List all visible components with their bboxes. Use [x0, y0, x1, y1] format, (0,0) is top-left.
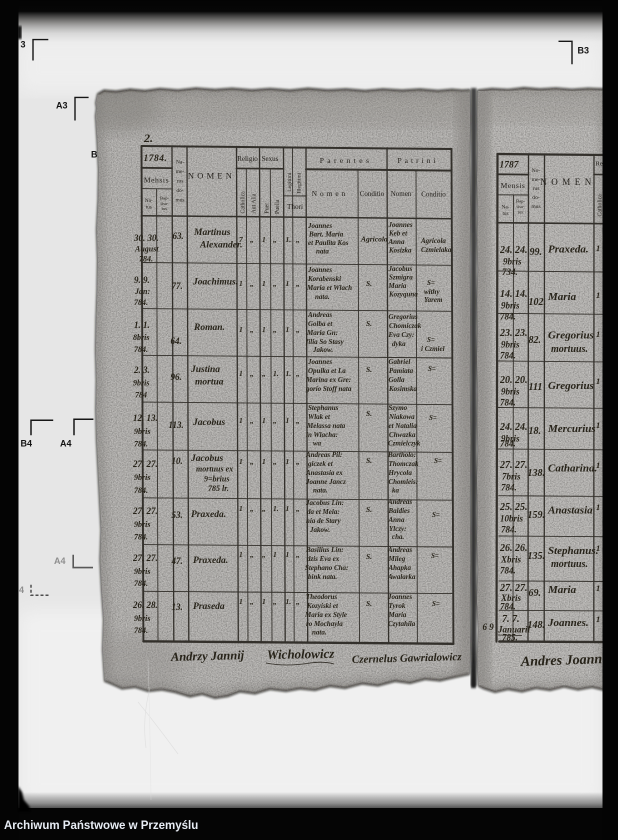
svg-text:mus: mus: [176, 198, 185, 204]
svg-text:Jakow.: Jakow.: [312, 346, 333, 354]
svg-text:Basilius Lin:: Basilius Lin:: [305, 546, 344, 554]
svg-text:mus: mus: [531, 204, 540, 210]
svg-text:Gregorius: Gregorius: [548, 330, 594, 342]
svg-text:Catholica: Catholica: [240, 191, 246, 214]
svg-text:nata: nata: [316, 248, 329, 256]
svg-text:Praxeda.: Praxeda.: [548, 244, 589, 256]
svg-text:1: 1: [262, 235, 266, 244]
svg-text:Mehsis: Mehsis: [144, 176, 169, 185]
svg-text:1: 1: [596, 614, 600, 624]
svg-text:9bris: 9bris: [503, 257, 522, 267]
svg-text:„: „: [296, 504, 300, 513]
svg-text:785.: 785.: [502, 633, 518, 643]
svg-text:nia de Stary: nia de Stary: [306, 517, 342, 525]
svg-text:Martinus: Martinus: [193, 228, 231, 238]
svg-text:1: 1: [273, 550, 277, 559]
svg-text:S.: S.: [366, 365, 372, 374]
svg-text:August: August: [134, 245, 159, 254]
svg-text:Anastasia: Anastasia: [547, 505, 593, 517]
svg-text:S=: S=: [431, 552, 439, 560]
svg-text:1. 1.: 1. 1.: [134, 320, 150, 330]
svg-text:784.: 784.: [500, 398, 516, 408]
svg-text:Alexander.: Alexander.: [199, 241, 243, 251]
svg-text:1: 1: [239, 550, 243, 559]
svg-text:27. 27.: 27. 27.: [132, 459, 158, 469]
svg-text:10bris: 10bris: [500, 514, 524, 524]
svg-text:1: 1: [286, 504, 290, 513]
svg-text:ka: ka: [392, 487, 400, 495]
svg-text:do-: do-: [532, 195, 540, 201]
svg-text:Chomleis:: Chomleis:: [389, 478, 419, 486]
svg-text:me-: me-: [176, 169, 185, 175]
svg-text:Conditio: Conditio: [421, 190, 446, 198]
svg-text:Maria ex Style: Maria ex Style: [304, 611, 347, 619]
svg-text:113.: 113.: [169, 420, 184, 430]
svg-text:Joanne Jancz: Joanne Jancz: [305, 478, 346, 486]
svg-text:Szmigra: Szmigra: [389, 274, 413, 282]
svg-text:1.: 1.: [273, 369, 279, 378]
svg-text:6 9: 6 9: [483, 622, 495, 632]
svg-text:S=: S=: [432, 600, 440, 608]
svg-text:Chomiczak: Chomiczak: [389, 322, 422, 330]
svg-text:Agricola: Agricola: [360, 235, 388, 244]
svg-text:1.: 1.: [273, 504, 279, 513]
svg-text:„: „: [250, 235, 254, 244]
svg-text:1: 1: [286, 416, 290, 425]
svg-text:Maria: Maria: [547, 291, 577, 303]
svg-text:„: „: [250, 416, 254, 425]
svg-text:da et Mela:: da et Mela:: [307, 508, 340, 516]
svg-text:1: 1: [286, 457, 290, 466]
svg-text:nata.: nata.: [315, 293, 330, 301]
svg-text:9=brius: 9=brius: [204, 475, 229, 484]
svg-text:S=: S=: [429, 414, 437, 422]
svg-text:7: 7: [239, 235, 243, 244]
svg-text:Xbris: Xbris: [500, 555, 522, 565]
svg-text:Kosimska: Kosimska: [388, 385, 418, 393]
svg-text:Stephanus: Stephanus: [308, 404, 339, 412]
svg-text:dzis Eva ex: dzis Eva ex: [307, 555, 340, 563]
svg-text:Opulka et La: Opulka et La: [308, 367, 346, 375]
svg-text:„: „: [296, 369, 300, 378]
svg-text:Jacobus: Jacobus: [192, 418, 226, 428]
svg-text:Andrzy Jannij: Andrzy Jannij: [170, 648, 245, 664]
svg-text:8bris: 8bris: [133, 333, 149, 342]
svg-text:27. 27.: 27. 27.: [499, 460, 528, 471]
svg-text:1: 1: [239, 457, 243, 466]
svg-text:26. 28.: 26. 28.: [132, 600, 158, 610]
svg-text:tus: tus: [502, 211, 508, 217]
svg-text:S.: S.: [366, 599, 372, 608]
svg-text:784.: 784.: [500, 312, 516, 322]
svg-text:Anastasia ex: Anastasia ex: [305, 469, 343, 477]
svg-text:1: 1: [286, 325, 290, 334]
svg-text:mortuus.: mortuus.: [551, 344, 588, 355]
svg-text:785 lr.: 785 lr.: [208, 484, 229, 493]
svg-text:1: 1: [286, 279, 290, 288]
svg-text:Illegitimi: Illegitimi: [297, 172, 303, 193]
svg-text:Joannes: Joannes: [307, 222, 332, 230]
svg-text:nata.: nata.: [313, 487, 328, 495]
svg-text:S=: S=: [428, 365, 436, 373]
svg-text:B4: B4: [21, 439, 33, 449]
svg-text:rus: rus: [177, 179, 184, 185]
svg-text:1: 1: [239, 416, 243, 425]
svg-text:mortua: mortua: [195, 378, 224, 388]
svg-text:23. 23.: 23. 23.: [499, 328, 528, 339]
svg-text:Joannes: Joannes: [387, 593, 412, 601]
svg-text:Thomczak: Thomczak: [389, 460, 419, 468]
svg-text:No-: No-: [532, 168, 541, 174]
svg-text:Baldies: Baldies: [388, 507, 411, 515]
svg-text:1784.: 1784.: [144, 154, 168, 164]
svg-text:1: 1: [596, 329, 600, 339]
svg-text:cha.: cha.: [392, 533, 405, 541]
svg-text:Kozyquna: Kozyquna: [388, 291, 418, 299]
svg-text:„: „: [296, 416, 300, 425]
svg-text:„: „: [262, 369, 266, 378]
svg-text:18.: 18.: [529, 426, 542, 437]
svg-text:Maria et Wlach: Maria et Wlach: [306, 284, 352, 292]
svg-text:Theodorus: Theodorus: [306, 593, 337, 601]
svg-text:Joannes: Joannes: [307, 266, 332, 274]
svg-text:111: 111: [529, 382, 543, 393]
svg-text:S.: S.: [366, 319, 372, 328]
svg-text:Puer: Puer: [265, 203, 271, 214]
svg-text:784.: 784.: [134, 345, 148, 354]
svg-text:9bris: 9bris: [501, 340, 520, 350]
svg-text:784.: 784.: [139, 255, 153, 264]
svg-text:1.: 1.: [286, 235, 292, 244]
svg-text:Andres Joann: Andres Joann: [520, 652, 603, 670]
svg-text:Bartholo:: Bartholo:: [387, 451, 416, 459]
svg-text:784.: 784.: [134, 486, 148, 495]
svg-text:9bris: 9bris: [134, 473, 150, 482]
svg-text:1: 1: [596, 583, 600, 593]
svg-text:Mercurius: Mercurius: [547, 423, 596, 435]
svg-text:Aut Alia: Aut Alia: [252, 193, 258, 213]
svg-text:Mensis: Mensis: [501, 181, 526, 190]
svg-text:Sexus: Sexus: [262, 155, 279, 163]
svg-text:„: „: [250, 597, 254, 606]
svg-text:1: 1: [239, 279, 243, 288]
svg-text:„: „: [296, 457, 300, 466]
svg-text:Conditio: Conditio: [360, 190, 385, 198]
svg-text:in Wlacha:: in Wlacha:: [306, 431, 338, 439]
svg-text:Roman.: Roman.: [193, 323, 225, 333]
svg-text:26. 26.: 26. 26.: [499, 543, 528, 554]
svg-text:Na-: Na-: [502, 205, 510, 211]
svg-text:Archiwum Państwowe w Przemyślu: Archiwum Państwowe w Przemyślu: [4, 820, 198, 832]
svg-text:Gregorius: Gregorius: [548, 380, 594, 392]
svg-text:„: „: [273, 597, 277, 606]
svg-text:Kosizka: Kosizka: [388, 247, 412, 255]
svg-text:9bris: 9bris: [133, 379, 149, 388]
svg-text:1.: 1.: [286, 597, 292, 606]
svg-text:14. 14.: 14. 14.: [500, 289, 528, 300]
svg-text:i Czmiel: i Czmiel: [421, 345, 445, 353]
svg-text:Bart. Maria: Bart. Maria: [308, 231, 344, 239]
svg-text:2. 3.: 2. 3.: [133, 365, 150, 375]
svg-text:S=: S=: [432, 511, 440, 519]
svg-text:Marina ex Gre:: Marina ex Gre:: [305, 376, 351, 384]
svg-text:„: „: [296, 325, 300, 334]
svg-text:Agricola: Agricola: [420, 237, 446, 245]
svg-text:„: „: [273, 325, 277, 334]
svg-text:Catholica: Catholica: [597, 194, 603, 217]
svg-text:Andreas: Andreas: [307, 311, 332, 319]
svg-text:A4: A4: [60, 439, 72, 449]
svg-text:9bris: 9bris: [134, 427, 150, 436]
svg-text:9bris: 9bris: [501, 301, 520, 311]
svg-text:784.: 784.: [501, 525, 517, 535]
svg-text:Andreas: Andreas: [387, 498, 412, 506]
svg-text:mortuus.: mortuus.: [551, 559, 588, 570]
svg-text:784.: 784.: [134, 440, 148, 449]
svg-text:96.: 96.: [171, 372, 182, 382]
svg-text:S.: S.: [366, 552, 372, 561]
svg-text:„: „: [296, 597, 300, 606]
svg-text:Keb et: Keb et: [388, 230, 408, 238]
svg-text:Nomen: Nomen: [391, 190, 412, 198]
svg-text:Parentes: Parentes: [320, 156, 373, 165]
svg-text:Joannes: Joannes: [388, 221, 413, 229]
svg-text:„: „: [273, 416, 277, 425]
svg-text:1: 1: [596, 290, 600, 300]
svg-text:tus: tus: [146, 205, 152, 211]
svg-text:Czmielaka: Czmielaka: [421, 246, 452, 254]
svg-text:Czmielczyk: Czmielczyk: [388, 440, 421, 448]
svg-text:1: 1: [596, 243, 600, 253]
svg-text:tus: tus: [162, 206, 168, 211]
svg-text:tisa-: tisa-: [517, 204, 525, 209]
svg-text:Mileg: Mileg: [388, 555, 406, 563]
svg-text:Religio: Religio: [237, 155, 258, 163]
svg-text:B3: B3: [578, 46, 590, 56]
svg-text:Praxeda.: Praxeda.: [191, 510, 226, 520]
svg-text:1: 1: [262, 279, 266, 288]
svg-text:7. 7.: 7. 7.: [502, 614, 520, 625]
svg-text:1: 1: [239, 597, 243, 606]
svg-text:102.: 102.: [529, 297, 547, 308]
svg-text:784.: 784.: [500, 602, 516, 612]
svg-text:1: 1: [596, 376, 600, 386]
svg-text:Patrini: Patrini: [398, 156, 439, 165]
svg-text:9bris: 9bris: [134, 614, 150, 623]
svg-text:Czytahila: Czytahila: [388, 620, 416, 628]
svg-text:giczek et: giczek et: [307, 460, 334, 468]
svg-text:Praxeda.: Praxeda.: [193, 556, 228, 566]
svg-text:„: „: [296, 550, 300, 559]
svg-text:148.: 148.: [528, 620, 546, 631]
svg-text:27. 27.: 27. 27.: [132, 553, 158, 563]
svg-text:9. 9.: 9. 9.: [134, 275, 150, 285]
svg-text:Na-: Na-: [176, 160, 184, 166]
svg-text:Gregorius: Gregorius: [389, 313, 418, 321]
svg-text:Ylczy:: Ylczy:: [389, 525, 407, 533]
svg-text:„: „: [296, 235, 300, 244]
svg-text:„: „: [250, 504, 254, 513]
svg-text:77.: 77.: [172, 281, 183, 291]
svg-text:bink nata.: bink nata.: [308, 573, 337, 581]
svg-text:69.: 69.: [529, 588, 542, 599]
svg-text:1: 1: [239, 325, 243, 334]
svg-text:Joannes: Joannes: [307, 358, 332, 366]
svg-text:4: 4: [19, 585, 24, 595]
svg-text:„: „: [250, 457, 254, 466]
svg-text:Anna: Anna: [388, 238, 405, 246]
svg-text:Awalarka: Awalarka: [387, 573, 416, 581]
svg-text:9bris: 9bris: [501, 387, 520, 397]
svg-text:Na-: Na-: [145, 198, 153, 204]
svg-text:27. 27.: 27. 27.: [132, 506, 158, 516]
svg-text:„: „: [250, 550, 254, 559]
svg-text:784: 784: [135, 391, 147, 400]
svg-text:Chwazka: Chwazka: [389, 431, 416, 439]
svg-text:1: 1: [596, 502, 600, 512]
svg-text:me-: me-: [532, 177, 541, 183]
svg-text:47.: 47.: [171, 556, 183, 566]
svg-text:1: 1: [239, 504, 243, 513]
svg-text:Korabenski: Korabenski: [307, 275, 341, 283]
svg-text:S.: S.: [366, 505, 372, 514]
svg-text:Gabriel: Gabriel: [389, 358, 411, 366]
svg-text:dyka: dyka: [392, 340, 406, 348]
svg-text:do-: do-: [176, 188, 183, 194]
svg-text:Pamiata: Pamiata: [389, 367, 414, 375]
svg-text:Bap-: Bap-: [160, 196, 169, 201]
svg-text:784.: 784.: [134, 626, 148, 635]
svg-text:„: „: [262, 504, 266, 513]
svg-text:et Natalia: et Natalia: [389, 422, 418, 430]
svg-text:A4: A4: [54, 556, 66, 566]
svg-text:784.: 784.: [500, 351, 516, 361]
svg-text:9bris: 9bris: [134, 520, 150, 529]
svg-text:12. 13.: 12. 13.: [133, 413, 158, 423]
svg-text:NOMEN: NOMEN: [188, 170, 235, 180]
svg-text:NOMEN: NOMEN: [540, 177, 596, 187]
svg-text:Yarem: Yarem: [424, 296, 443, 304]
svg-text:1: 1: [262, 597, 266, 606]
svg-text:Szymo: Szymo: [389, 404, 408, 412]
svg-text:9bris: 9bris: [134, 567, 150, 576]
svg-text:Wlak et: Wlak et: [308, 413, 331, 421]
svg-text:et Paulita Kos: et Paulita Kos: [308, 239, 349, 247]
svg-text:Catharina.: Catharina.: [548, 463, 597, 475]
svg-text:1: 1: [596, 460, 600, 470]
svg-text:Jacobus: Jacobus: [190, 454, 224, 464]
svg-text:Praseda: Praseda: [193, 602, 225, 612]
svg-text:1: 1: [596, 543, 600, 553]
svg-text:Melassa nata: Melassa nata: [306, 422, 346, 430]
svg-text:1: 1: [262, 325, 266, 334]
svg-text:mortuus ex: mortuus ex: [196, 465, 233, 474]
svg-text:nata.: nata.: [312, 629, 327, 637]
svg-text:S.: S.: [366, 279, 372, 288]
svg-text:Thori: Thori: [287, 203, 303, 211]
svg-text:withy: withy: [424, 288, 440, 296]
svg-text:1: 1: [239, 369, 243, 378]
svg-text:S.: S.: [366, 456, 372, 465]
svg-text:tisa-: tisa-: [161, 201, 169, 206]
svg-text:99.: 99.: [530, 247, 543, 258]
svg-text:Nomen: Nomen: [312, 189, 348, 198]
svg-text:784.: 784.: [134, 579, 148, 588]
svg-text:tus: tus: [518, 210, 524, 215]
svg-text:1787: 1787: [500, 161, 520, 171]
svg-text:Jacobus: Jacobus: [388, 265, 413, 273]
svg-text:2.: 2.: [143, 131, 153, 145]
svg-text:20. 20.: 20. 20.: [499, 375, 528, 386]
svg-text:25. 25.: 25. 25.: [499, 502, 528, 513]
svg-text:Hrycola: Hrycola: [388, 469, 413, 477]
svg-text:„: „: [250, 325, 254, 334]
svg-text:Joachimus.: Joachimus.: [192, 278, 238, 288]
svg-text:wa: wa: [313, 440, 322, 448]
svg-text:1: 1: [596, 420, 600, 430]
svg-text:Andreas Pil:: Andreas Pil:: [305, 451, 342, 459]
svg-text:Maria: Maria: [388, 282, 407, 290]
svg-text:784.: 784.: [134, 298, 148, 307]
svg-text:1: 1: [262, 457, 266, 466]
svg-text:Puella: Puella: [275, 199, 281, 214]
svg-text:784.: 784.: [501, 483, 517, 493]
svg-text:Bap-: Bap-: [516, 199, 525, 204]
svg-text:Maria Gn:: Maria Gn:: [306, 329, 338, 337]
svg-text:„: „: [273, 279, 277, 288]
svg-text:ro Mochayla: ro Mochayla: [306, 620, 343, 628]
svg-text:Stephano Cha:: Stephano Cha:: [305, 564, 348, 572]
svg-text:Maria: Maria: [547, 584, 577, 596]
svg-text:Wicholowicz: Wicholowicz: [267, 646, 336, 662]
svg-text:30. 30.: 30. 30.: [133, 233, 159, 243]
svg-text:Justina: Justina: [190, 365, 220, 375]
svg-text:24. 24.: 24. 24.: [499, 422, 528, 433]
svg-text:Jacobus Lin:: Jacobus Lin:: [305, 499, 344, 507]
svg-text:Tyrok: Tyrok: [389, 602, 406, 610]
svg-text:S.: S.: [366, 409, 372, 418]
svg-text:24. 24.: 24. 24.: [499, 245, 528, 256]
svg-text:Andreas: Andreas: [387, 546, 412, 554]
svg-text:Ahapka: Ahapka: [388, 564, 412, 572]
svg-text:S=: S=: [427, 336, 435, 344]
svg-text:Kozyiski et: Kozyiski et: [306, 602, 339, 610]
svg-text:7bris: 7bris: [502, 472, 521, 482]
svg-text:Niakowa: Niakowa: [388, 413, 415, 421]
svg-text:13.: 13.: [172, 602, 183, 612]
svg-text:Eva Czy:: Eva Czy:: [388, 331, 415, 339]
svg-text:A3: A3: [56, 101, 68, 111]
svg-text:Joannes.: Joannes.: [547, 617, 589, 629]
svg-text:„: „: [250, 369, 254, 378]
svg-text:Jakow.: Jakow.: [309, 526, 330, 534]
svg-text:138.: 138.: [528, 468, 546, 479]
svg-text:3: 3: [21, 40, 26, 50]
svg-text:Anna: Anna: [388, 516, 405, 524]
svg-text:784.: 784.: [500, 566, 516, 576]
svg-text:1.: 1.: [286, 369, 292, 378]
svg-text:Golba et: Golba et: [308, 320, 333, 328]
svg-text:Golla: Golla: [389, 376, 405, 384]
svg-text:734.: 734.: [502, 267, 518, 277]
svg-text:Stephanus.: Stephanus.: [548, 545, 598, 557]
svg-text:rus: rus: [533, 186, 540, 192]
svg-text:„: „: [296, 279, 300, 288]
svg-text:784.: 784.: [134, 533, 148, 542]
svg-text:„: „: [250, 279, 254, 288]
svg-text:64.: 64.: [171, 336, 182, 346]
svg-text:Jan:: Jan:: [134, 287, 150, 296]
